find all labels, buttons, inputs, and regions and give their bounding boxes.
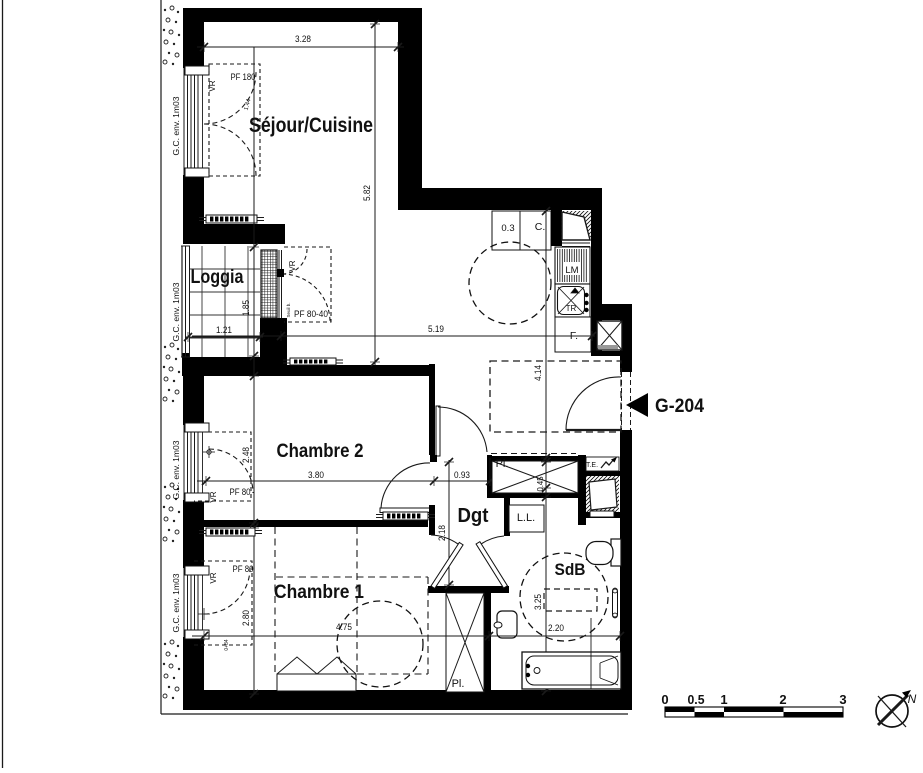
svg-text:VR: VR <box>209 491 218 502</box>
svg-text:Seuil b.: Seuil b. <box>286 302 291 317</box>
svg-text:Pl.: Pl. <box>496 458 509 470</box>
svg-text:VR: VR <box>208 80 217 91</box>
svg-text:Dgt: Dgt <box>458 505 489 527</box>
svg-text:SdB: SdB <box>555 560 586 579</box>
svg-text:0.45: 0.45 <box>535 476 545 491</box>
svg-text:1.85: 1.85 <box>241 300 252 316</box>
svg-text:2.48: 2.48 <box>241 447 252 463</box>
svg-text:LM: LM <box>565 265 578 276</box>
svg-text:Chambre 1: Chambre 1 <box>274 581 364 603</box>
svg-text:Loggia: Loggia <box>191 267 244 288</box>
svg-text:PF 80: PF 80 <box>230 487 251 497</box>
svg-text:TR: TR <box>566 304 577 313</box>
svg-text:N: N <box>908 692 917 706</box>
svg-text:0+84: 0+84 <box>224 639 230 650</box>
svg-text:PF 80: PF 80 <box>233 564 254 574</box>
svg-text:G.C. env. 1m03: G.C. env. 1m03 <box>171 96 181 155</box>
svg-text:2.18: 2.18 <box>437 525 448 541</box>
svg-text:G.C. env. 1m03: G.C. env. 1m03 <box>171 573 181 632</box>
svg-text:G.C. env. 1m03: G.C. env. 1m03 <box>171 440 181 499</box>
svg-text:Chambre 2: Chambre 2 <box>277 440 364 462</box>
svg-text:5.82: 5.82 <box>362 185 373 201</box>
svg-text:VR: VR <box>209 572 218 583</box>
svg-text:4.14: 4.14 <box>533 365 544 381</box>
svg-text:G-204: G-204 <box>655 396 704 417</box>
svg-text:1: 1 <box>720 692 727 707</box>
svg-text:L.L.: L.L. <box>517 512 535 524</box>
svg-text:2.80: 2.80 <box>241 610 252 626</box>
svg-text:VR: VR <box>288 260 297 271</box>
svg-text:0.93: 0.93 <box>454 470 470 481</box>
svg-text:2.20: 2.20 <box>548 623 564 634</box>
svg-text:5.19: 5.19 <box>428 324 444 335</box>
svg-text:Pl.: Pl. <box>452 678 465 690</box>
svg-text:3.28: 3.28 <box>295 34 311 45</box>
svg-text:C.: C. <box>535 221 546 233</box>
svg-text:T.E.: T.E. <box>586 462 598 469</box>
svg-text:Séjour/Cuisine: Séjour/Cuisine <box>249 114 373 137</box>
svg-text:0: 0 <box>661 692 668 707</box>
svg-text:0.5: 0.5 <box>688 692 705 707</box>
svg-text:PF 180: PF 180 <box>231 72 256 82</box>
svg-text:1.21: 1.21 <box>216 325 232 336</box>
svg-text:3: 3 <box>839 692 846 707</box>
svg-text:2: 2 <box>779 692 786 707</box>
svg-text:3.25: 3.25 <box>533 594 544 610</box>
svg-text:PF 80-40: PF 80-40 <box>294 309 328 319</box>
svg-text:G.C. env. 1m03: G.C. env. 1m03 <box>171 282 181 341</box>
svg-text:3.80: 3.80 <box>308 470 324 481</box>
svg-text:0.3: 0.3 <box>501 223 514 234</box>
svg-text:4.75: 4.75 <box>336 622 352 633</box>
